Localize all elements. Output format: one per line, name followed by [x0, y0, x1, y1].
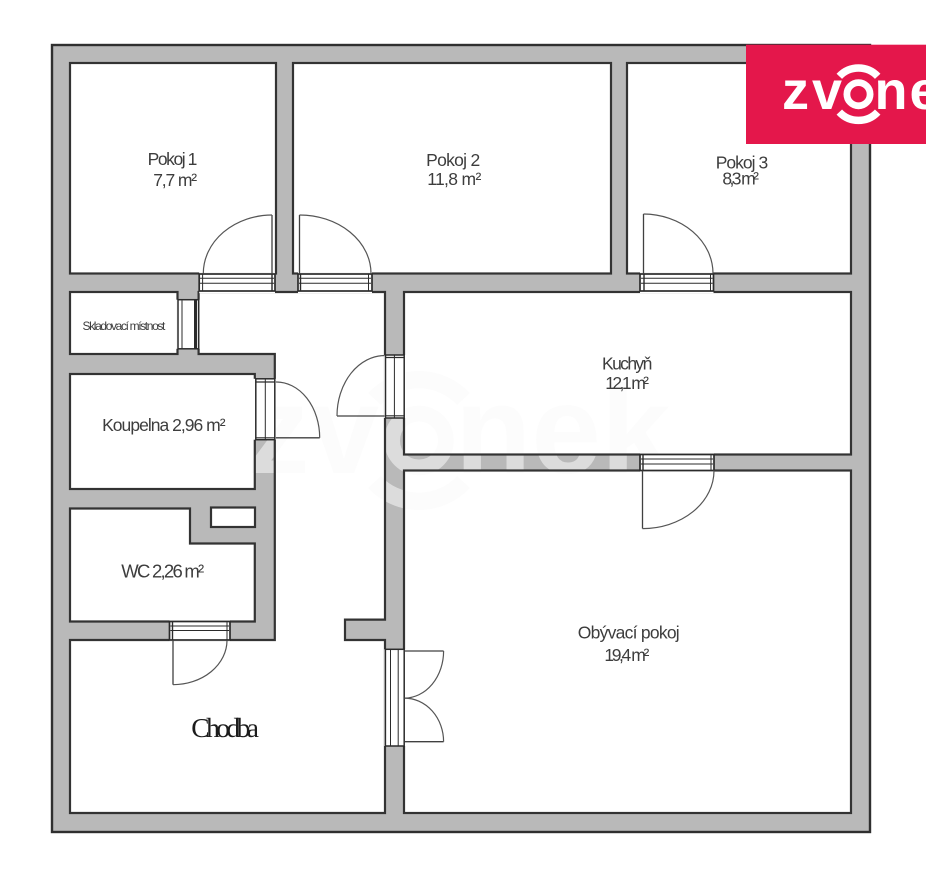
- svg-text:Skladovací místnost: Skladovací místnost: [83, 319, 167, 333]
- svg-text:12,1 m²: 12,1 m²: [605, 373, 649, 393]
- svg-text:WC 2,26 m²: WC 2,26 m²: [121, 561, 204, 582]
- svg-text:Chodba: Chodba: [191, 712, 259, 743]
- svg-text:7,7 m²: 7,7 m²: [153, 170, 197, 190]
- svg-text:zv: zv: [782, 61, 845, 121]
- svg-text:Koupelna 2,96 m²: Koupelna 2,96 m²: [102, 415, 226, 435]
- svg-text:Pokoj 1: Pokoj 1: [148, 149, 198, 169]
- svg-text:Kuchyň: Kuchyň: [602, 354, 652, 374]
- svg-text:Pokoj 2: Pokoj 2: [426, 150, 480, 170]
- svg-text:ne: ne: [875, 61, 926, 121]
- svg-text:19,4 m²: 19,4 m²: [604, 645, 649, 665]
- svg-text:11,8 m²: 11,8 m²: [427, 169, 481, 189]
- svg-text:8,3 m²: 8,3 m²: [722, 169, 759, 189]
- svg-text:Obývací pokoj: Obývací pokoj: [578, 623, 680, 643]
